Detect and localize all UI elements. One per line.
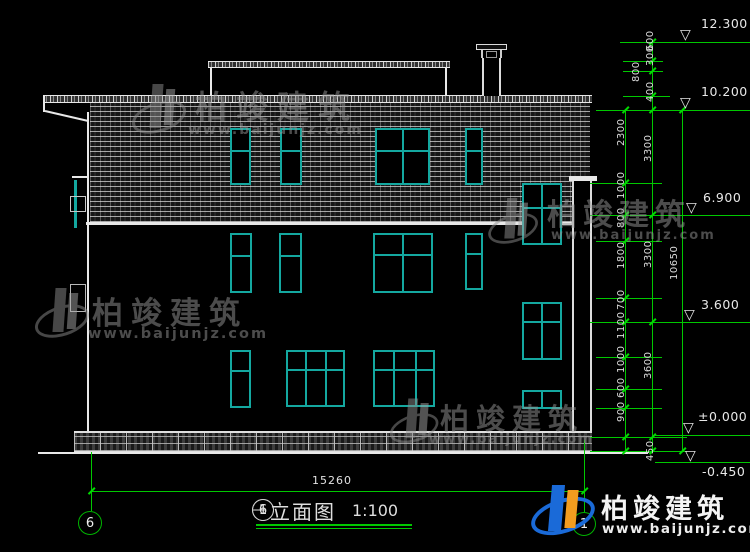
elevation-value: -0.450 [702, 464, 745, 479]
watermark: 柏竣建筑 www.baijunjz.com [487, 190, 750, 252]
elevation-triangle-icon: ▽ [683, 422, 694, 435]
title-axis-end: 1 [252, 499, 274, 521]
window [279, 233, 302, 293]
dim-ext-line [623, 61, 663, 62]
watermark: 柏竣建筑 www.baijunjz.com [388, 390, 628, 452]
watermark: 柏竣建筑 www.baijunjz.com [36, 284, 276, 348]
watermark-brand-url: www.baijunjz.com [188, 122, 363, 138]
left-eave-soffit [45, 110, 89, 122]
grid-extension-line [91, 452, 92, 511]
elevation-triangle-icon: ▽ [680, 29, 691, 42]
window [286, 350, 345, 407]
dim-ext-line [623, 71, 663, 72]
left-bracket-upper [70, 196, 86, 212]
brand-logo-icon [36, 284, 90, 342]
brand-logo-icon [133, 80, 187, 138]
watermark-brand-url: www.baijunjz.com [551, 228, 716, 243]
elevation-triangle-icon: ▽ [684, 309, 695, 322]
elevation-value: 12.300 [701, 16, 748, 31]
watermark: 柏竣建筑 www.baijunjz.com [133, 78, 553, 148]
elevation-triangle-icon: ▽ [680, 97, 691, 110]
title-underline [256, 524, 412, 526]
brand-logo-icon [533, 483, 597, 543]
drawing-title: 6 — 1 立面图 1:100 [252, 497, 398, 523]
pergola-beam [208, 61, 450, 68]
brand-url: www.baijunjz.com [602, 521, 750, 537]
total-width-label: 15260 [312, 474, 352, 487]
elevation-value: 3.600 [701, 297, 739, 312]
grid-bubble-left: 6 [78, 511, 102, 535]
window [230, 350, 251, 408]
title-name: 立面图 [270, 496, 336, 525]
elevation-level-line [655, 462, 750, 463]
elevation-triangle-icon: ▽ [685, 450, 696, 463]
ground-line [38, 452, 648, 454]
elevation-drawing-canvas: 600 300 800 400 2300 1000 800 1800 700 1… [0, 0, 750, 552]
brand-footer: 柏竣建筑 www.baijunjz.com [533, 481, 750, 545]
elevation-level-line [655, 42, 750, 43]
window [373, 233, 433, 293]
stair-window [522, 302, 562, 360]
scale-label: 1:100 [352, 501, 398, 520]
dim-ext-line [596, 110, 750, 111]
brand-logo-icon [489, 194, 539, 247]
dim-ext-line [590, 322, 750, 323]
dim-ext-line [596, 298, 662, 299]
dim-chain-line [682, 110, 683, 452]
window [465, 233, 483, 290]
elevation-level-line [655, 435, 750, 436]
left-wall-edge [87, 112, 89, 432]
title-underline [256, 528, 412, 529]
elevation-value: ±0.000 [698, 409, 747, 424]
total-width-dim-line [91, 491, 584, 492]
chimney-neck-inner [486, 51, 497, 58]
watermark-brand-url: www.baijunjz.com [429, 432, 594, 447]
watermark-brand-url: www.baijunjz.com [88, 326, 268, 342]
left-ledge [72, 176, 89, 178]
elevation-value: 10.200 [701, 84, 748, 99]
